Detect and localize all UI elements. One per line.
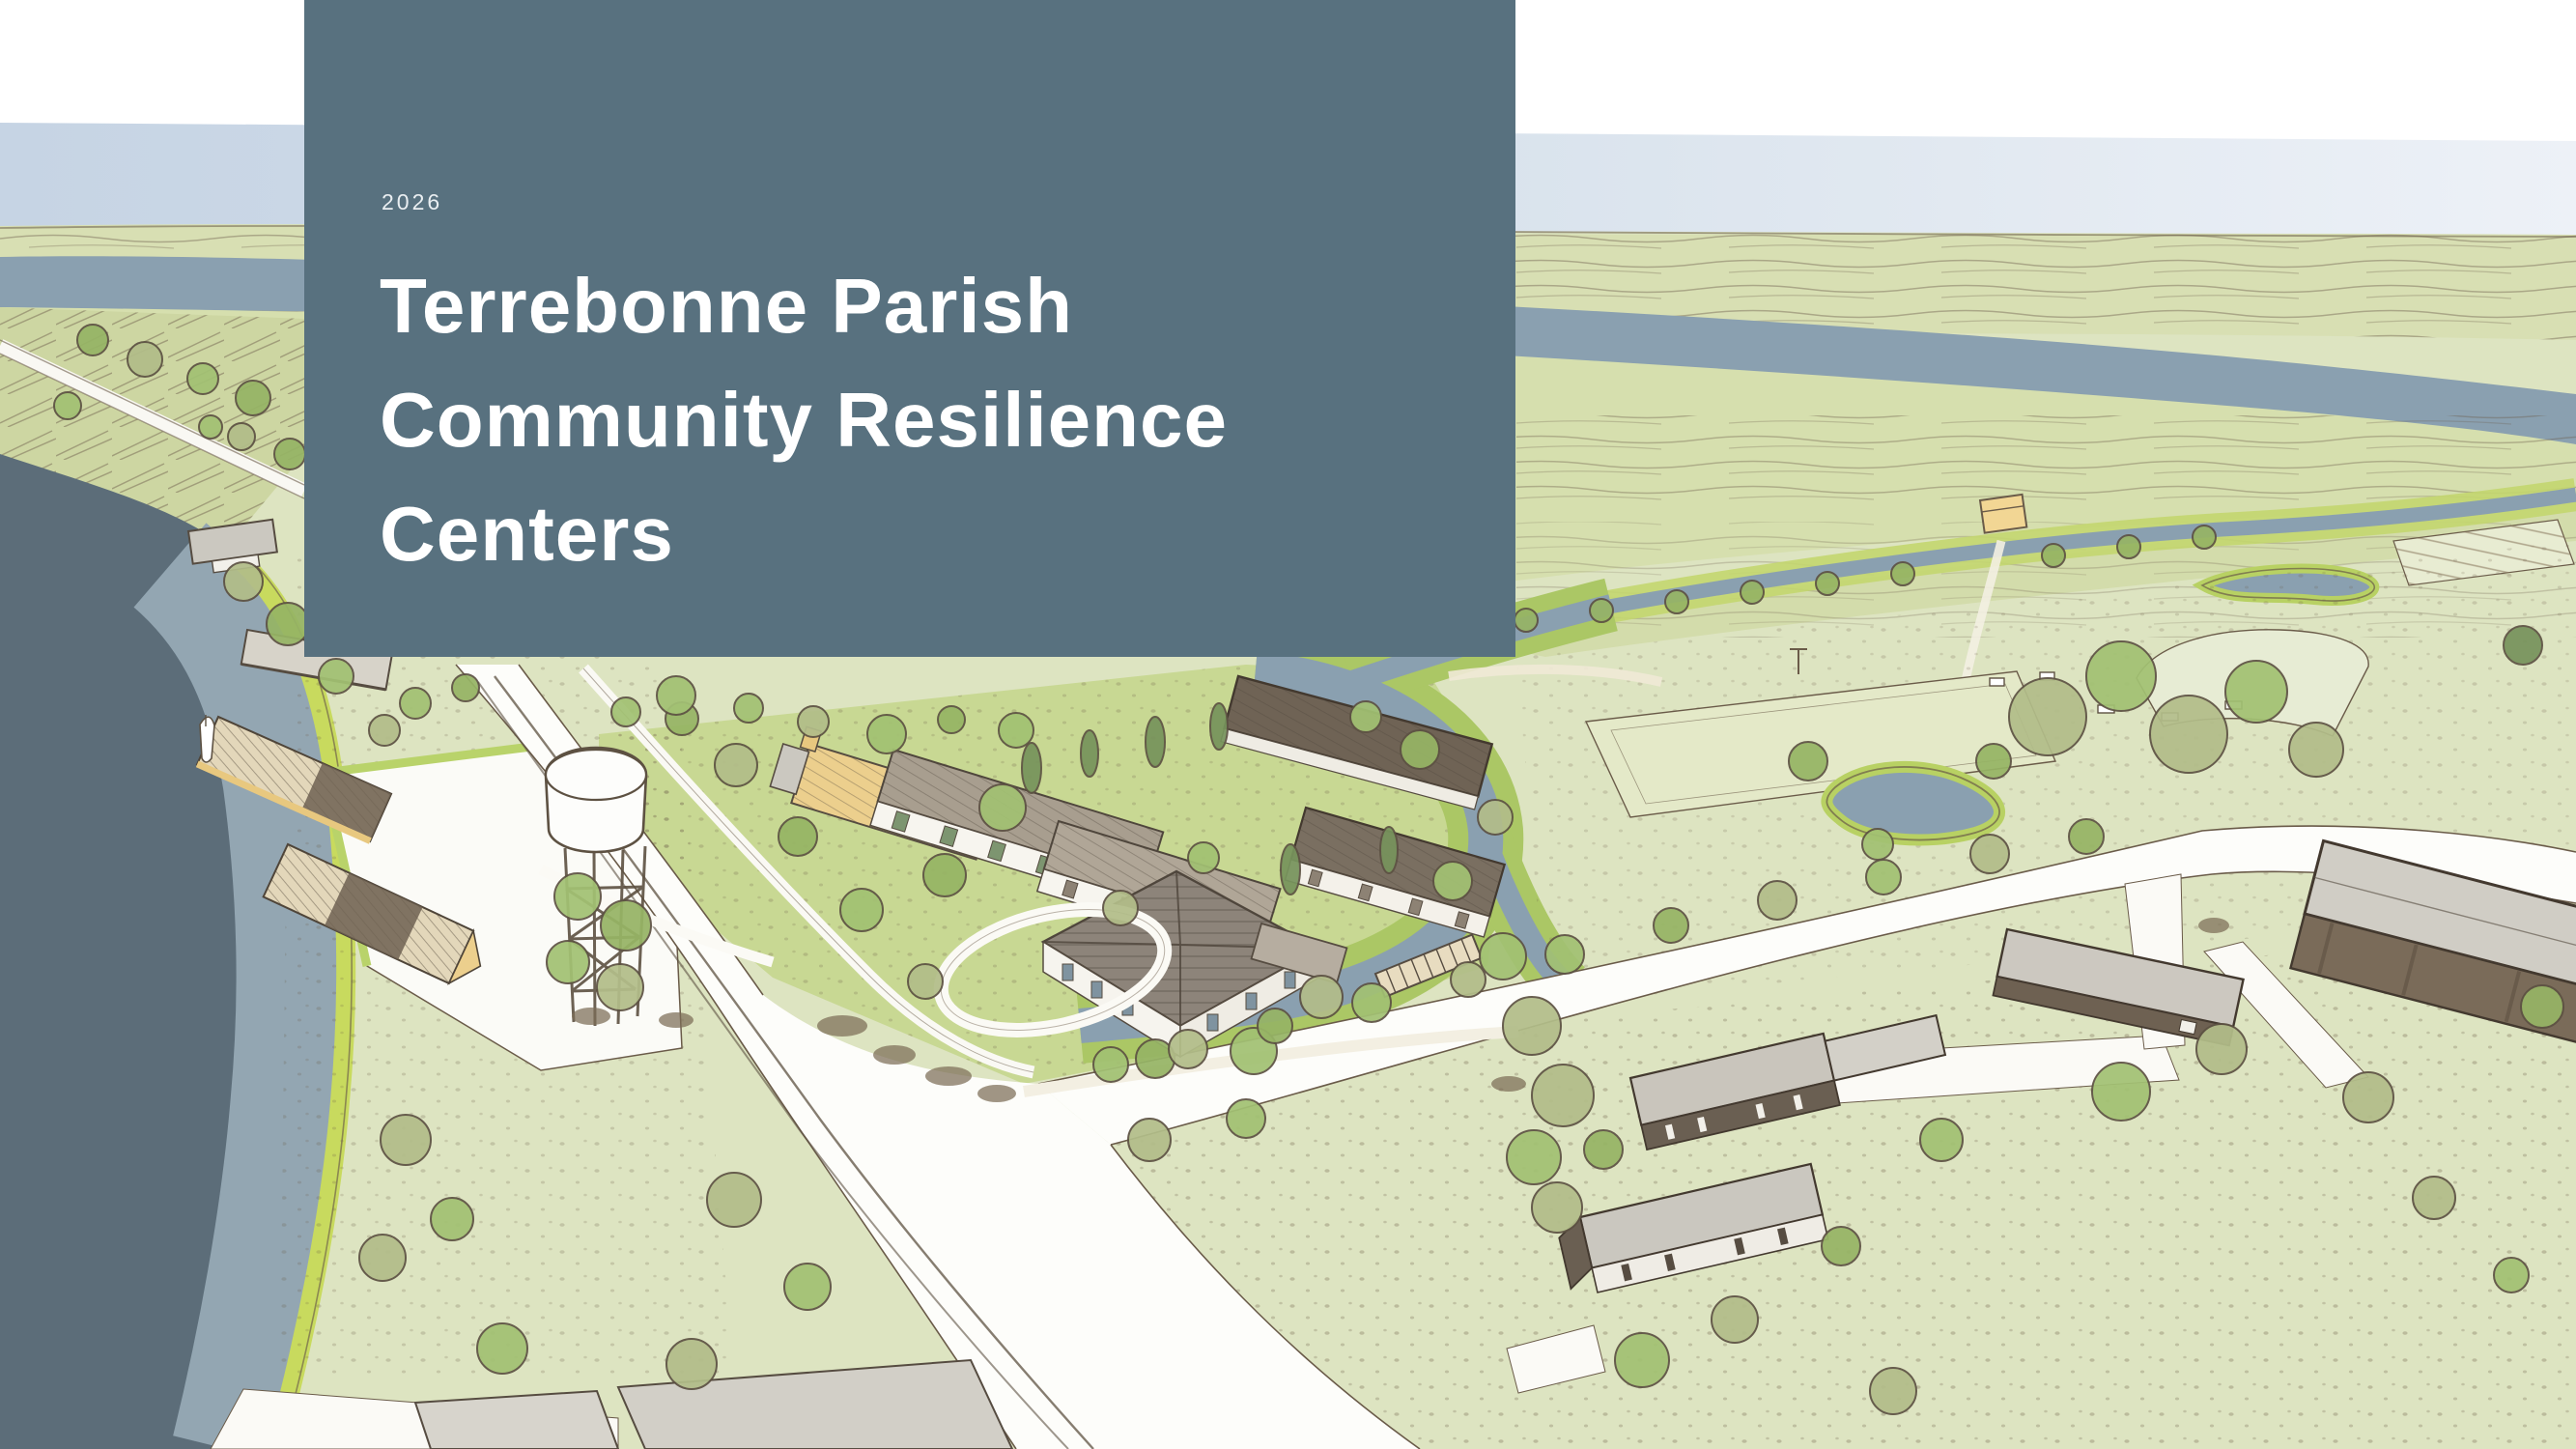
- title-panel: 2026 Terrebonne Parish Community Resilie…: [304, 0, 1515, 657]
- cover-title-line-1: Terrebonne Parish: [380, 249, 1228, 363]
- cover-title-line-3: Centers: [380, 477, 1228, 591]
- slide-cover: 2026 Terrebonne Parish Community Resilie…: [0, 0, 2576, 1449]
- cover-title: Terrebonne Parish Community Resilience C…: [380, 249, 1228, 591]
- cover-title-line-2: Community Resilience: [380, 363, 1228, 477]
- sailboat: [200, 715, 214, 762]
- pond: [1826, 767, 1999, 840]
- year-label: 2026: [382, 189, 442, 215]
- bayou-hut: [1980, 495, 2026, 533]
